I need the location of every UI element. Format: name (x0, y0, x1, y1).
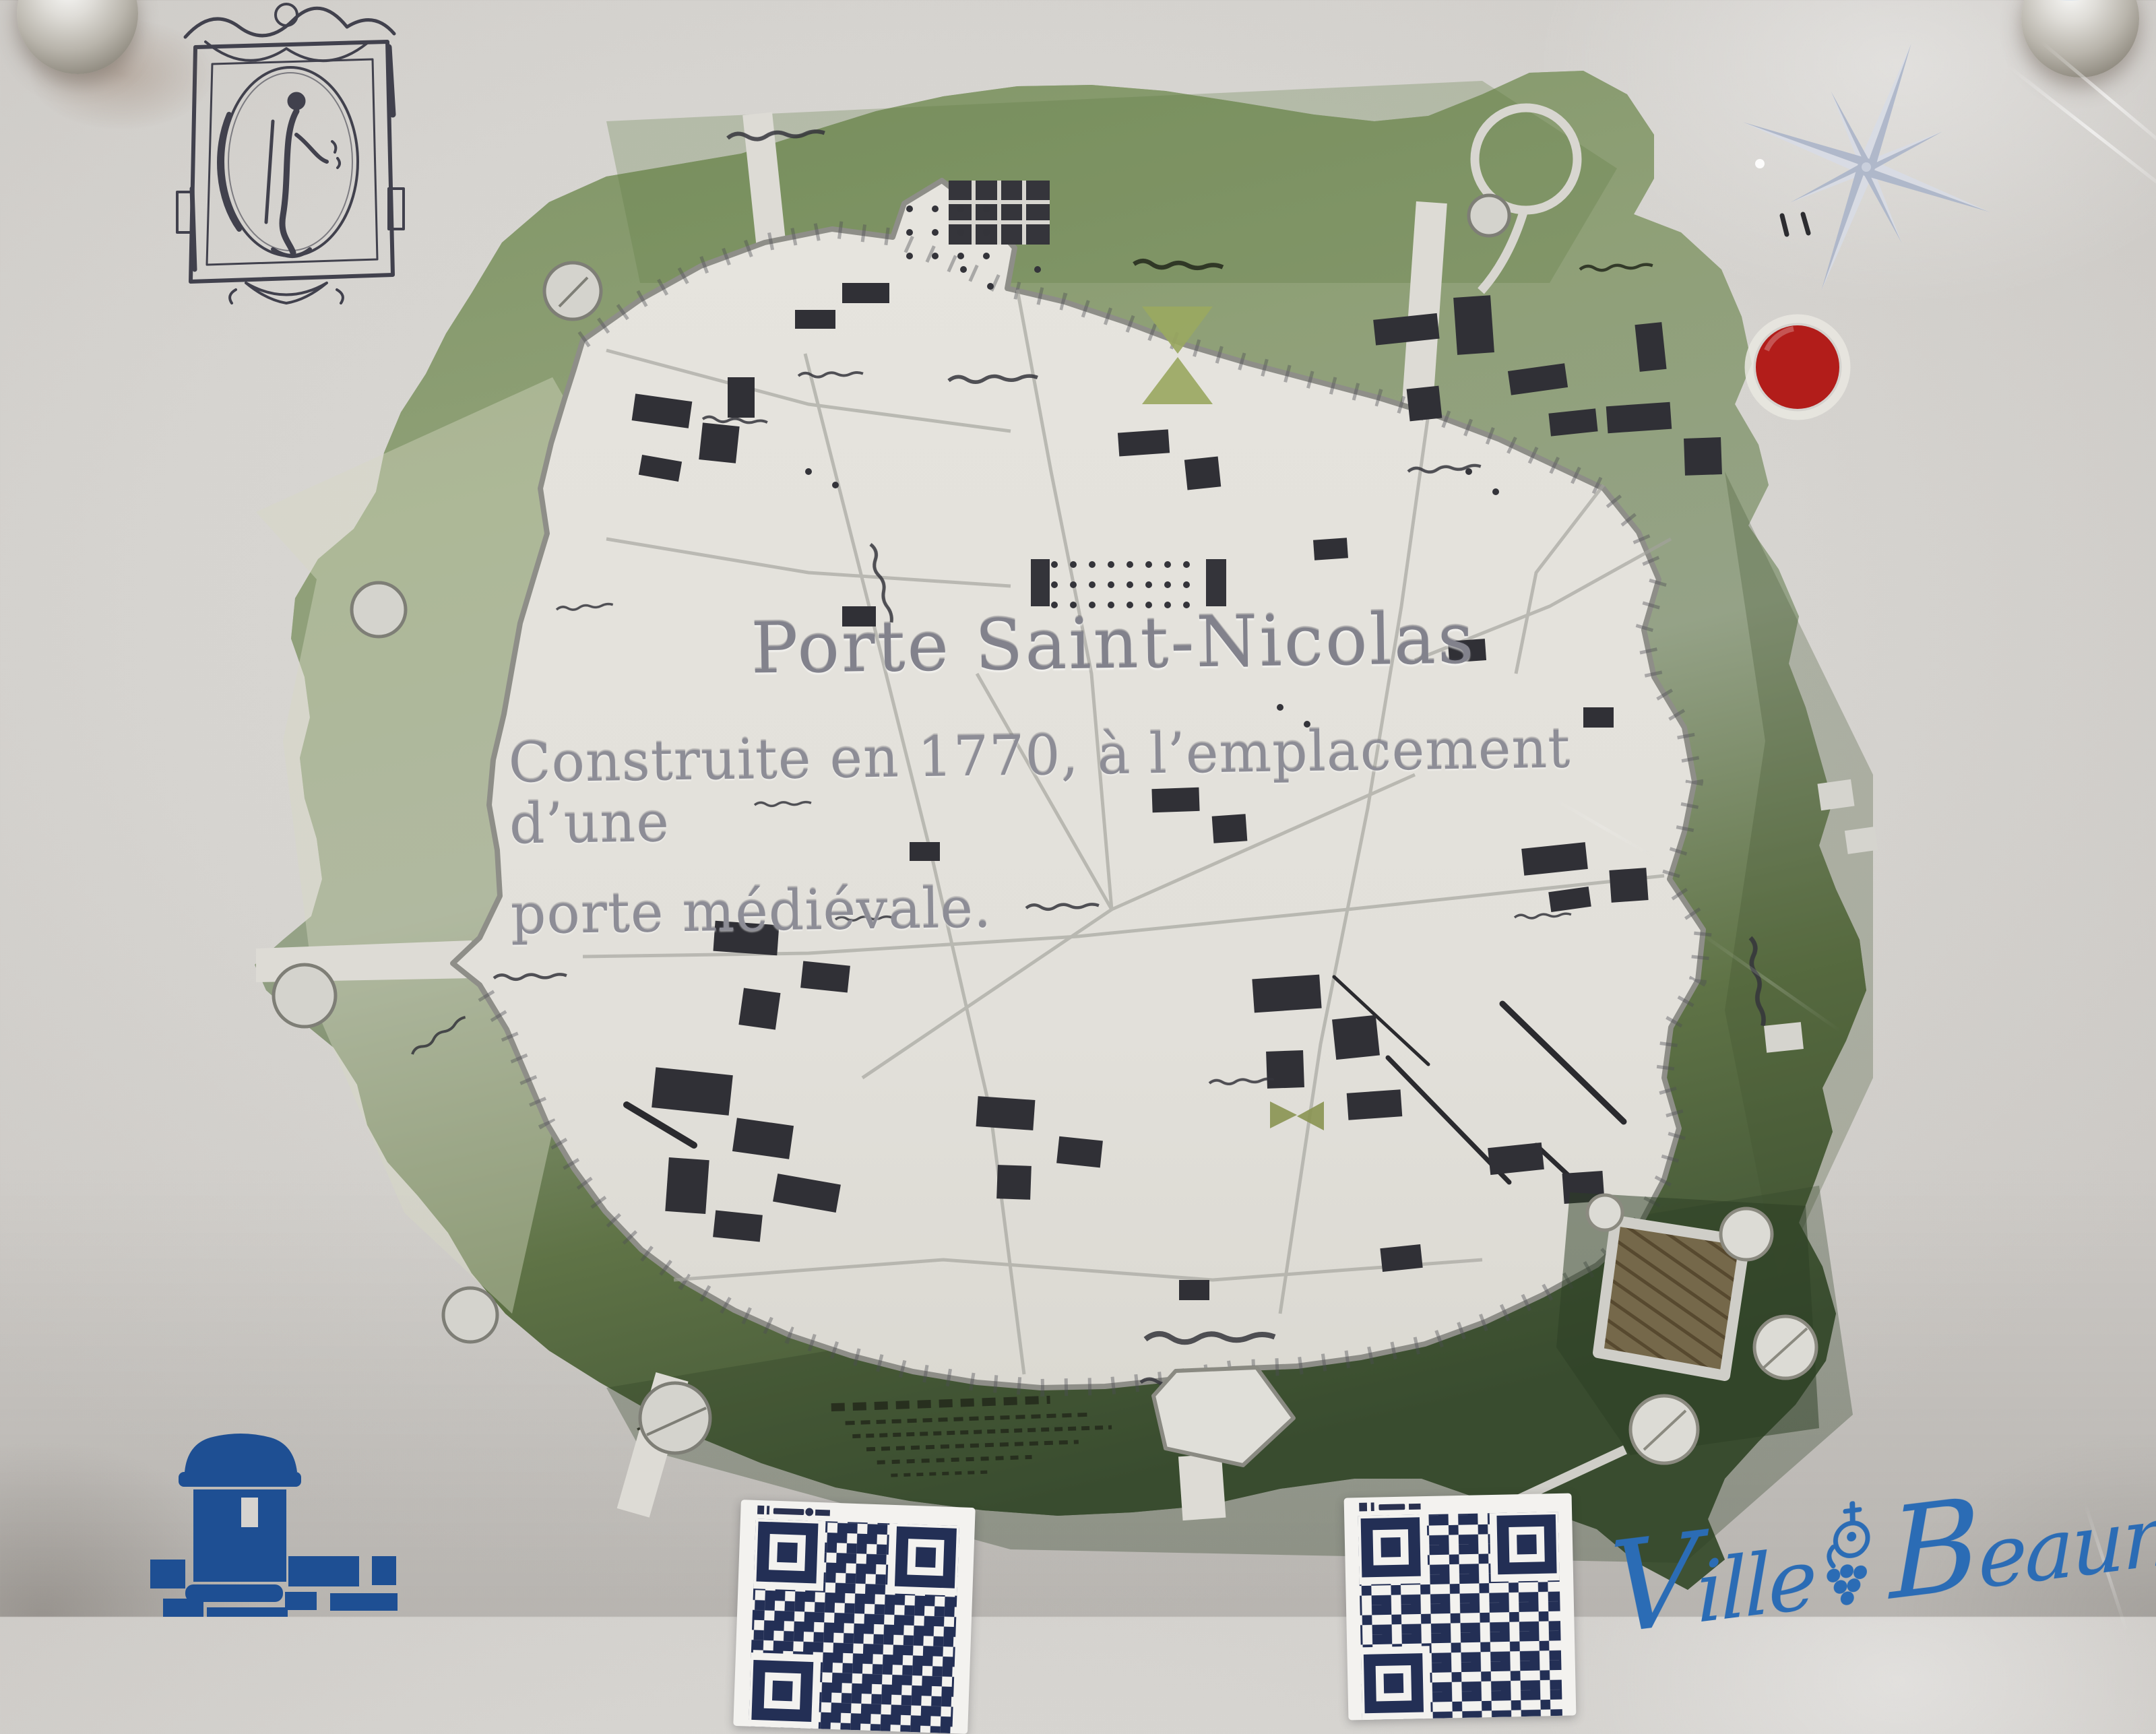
qr-card-french (733, 1500, 976, 1734)
compass-tick-marks (1782, 214, 1808, 234)
logo-word-ville: Ville (1608, 1502, 1816, 1652)
qr-card-english (1344, 1493, 1577, 1720)
map-subtitle-line-1: Construite en 1770, à l’emplacement d’un… (508, 717, 1722, 855)
sign-photo: { "panel": { "title": "Porte Saint-Nicol… (0, 0, 2156, 1617)
qr-language-label-marks (757, 1506, 830, 1517)
you-are-here-marker (1749, 319, 1846, 416)
map-title: Porte Saint-Nicolas (507, 596, 1720, 691)
church-block (949, 181, 1050, 245)
title-block: Porte Saint-Nicolas Construite en 1770, … (507, 596, 1724, 945)
compass-rose-icon (1698, 0, 2035, 335)
qr-code-icon (733, 1500, 976, 1734)
paint-speck (1755, 159, 1765, 168)
qr-language-label-marks (1359, 1502, 1420, 1512)
qr-code-icon (1344, 1493, 1577, 1720)
grape-cluster-icon (1812, 1492, 1894, 1628)
screw-highlight (2038, 0, 2120, 5)
rampart-tower-icon (143, 1432, 412, 1617)
tower-window (241, 1498, 258, 1527)
